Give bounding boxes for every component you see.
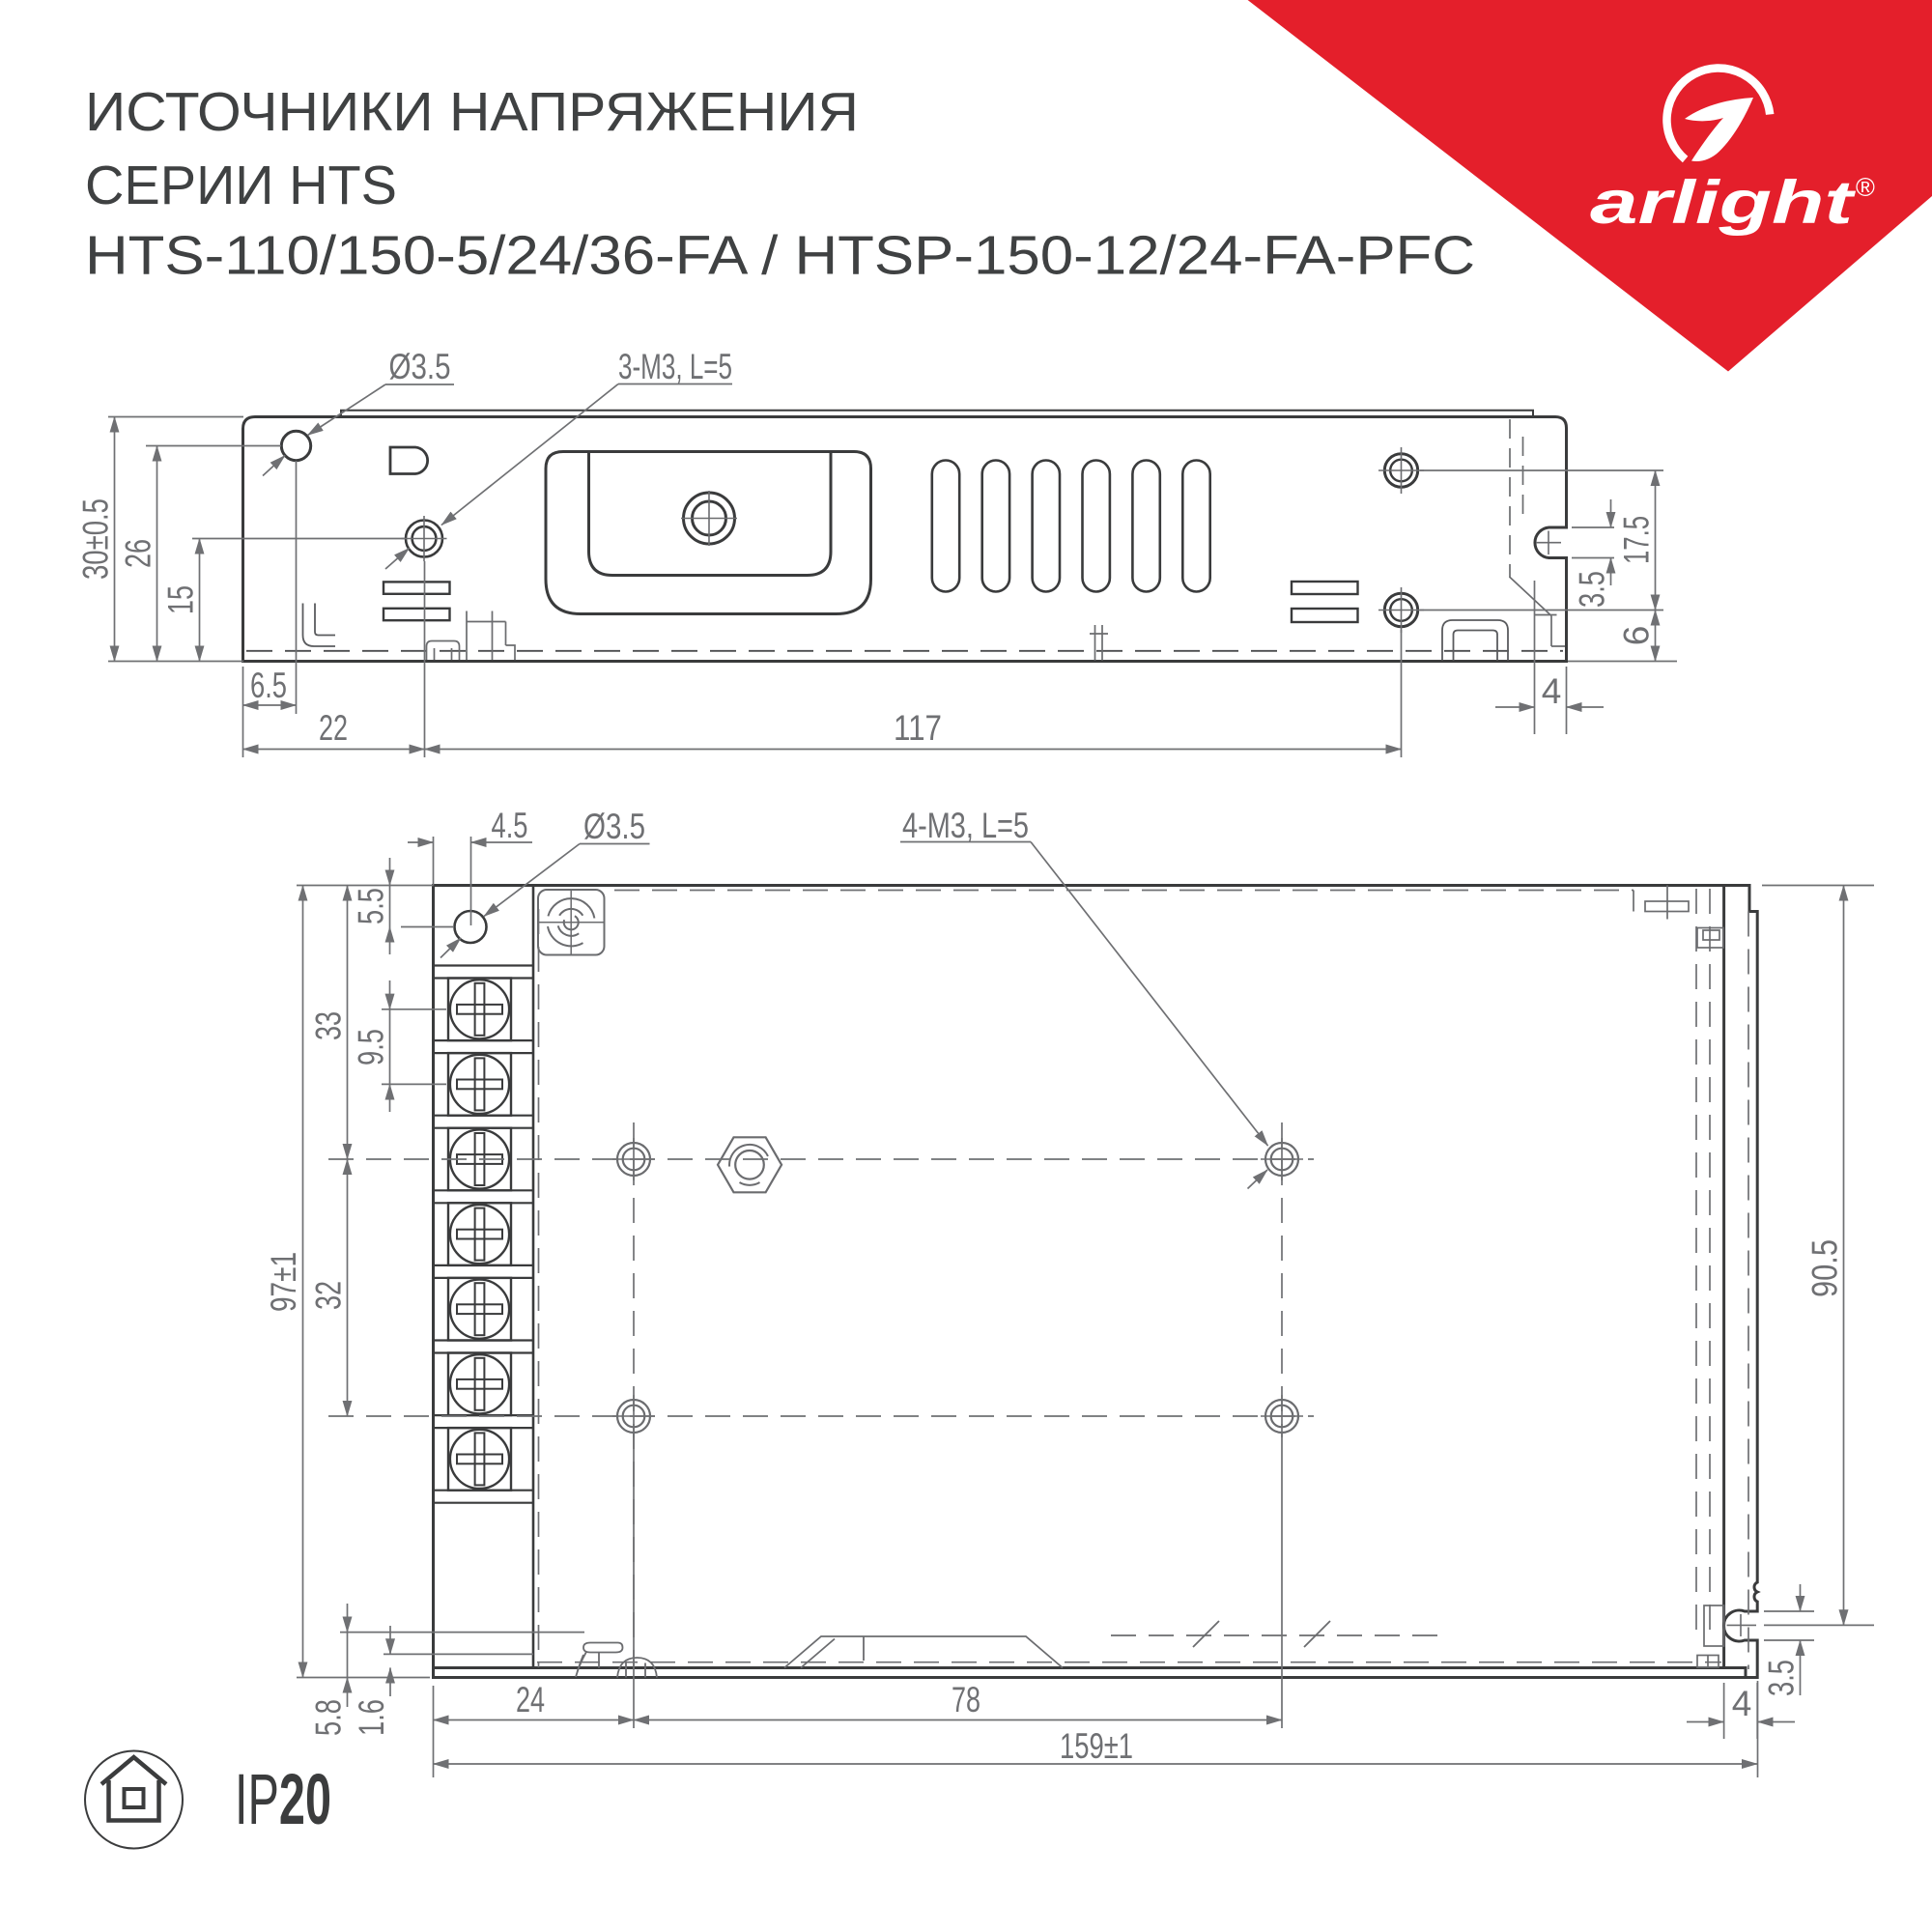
svg-text:4-M3, L=5: 4-M3, L=5 xyxy=(902,806,1029,845)
svg-text:Ø3.5: Ø3.5 xyxy=(583,807,645,846)
svg-text:24: 24 xyxy=(516,1680,545,1719)
svg-text:26: 26 xyxy=(119,539,158,568)
svg-text:3-M3, L=5: 3-M3, L=5 xyxy=(618,347,732,386)
svg-text:6.5: 6.5 xyxy=(250,666,287,705)
svg-text:4: 4 xyxy=(1542,671,1562,711)
svg-text:HTS-110/150-5/24/36-FA / HTSP-: HTS-110/150-5/24/36-FA / HTSP-150-12/24-… xyxy=(85,225,1475,286)
svg-text:159±1: 159±1 xyxy=(1060,1726,1133,1766)
svg-text:17.5: 17.5 xyxy=(1617,516,1657,564)
svg-text:32: 32 xyxy=(309,1281,349,1310)
svg-text:5.8: 5.8 xyxy=(309,1699,349,1736)
svg-text:5.5: 5.5 xyxy=(352,888,391,924)
svg-text:33: 33 xyxy=(309,1011,349,1040)
svg-text:15: 15 xyxy=(161,585,201,614)
svg-text:117: 117 xyxy=(894,708,942,748)
svg-text:9.5: 9.5 xyxy=(352,1029,391,1065)
svg-text:78: 78 xyxy=(952,1680,980,1719)
svg-text:Ø3.5: Ø3.5 xyxy=(389,347,451,386)
svg-text:4: 4 xyxy=(1732,1684,1752,1723)
svg-text:90.5: 90.5 xyxy=(1805,1239,1845,1297)
svg-text:®: ® xyxy=(1856,173,1875,202)
svg-text:arlight: arlight xyxy=(1590,169,1857,237)
svg-text:3.5: 3.5 xyxy=(1762,1660,1802,1696)
svg-text:97±1: 97±1 xyxy=(264,1252,303,1312)
svg-text:СЕРИИ HTS: СЕРИИ HTS xyxy=(85,155,397,215)
svg-text:22: 22 xyxy=(319,708,348,748)
svg-text:1.6: 1.6 xyxy=(352,1699,391,1736)
svg-text:ИСТОЧНИКИ НАПРЯЖЕНИЯ: ИСТОЧНИКИ НАПРЯЖЕНИЯ xyxy=(85,81,859,142)
svg-text:4.5: 4.5 xyxy=(492,806,528,845)
svg-text:6: 6 xyxy=(1617,626,1657,646)
svg-text:30±0.5: 30±0.5 xyxy=(76,498,116,580)
svg-text:3.5: 3.5 xyxy=(1573,571,1612,608)
svg-text:IP20: IP20 xyxy=(235,1759,331,1839)
